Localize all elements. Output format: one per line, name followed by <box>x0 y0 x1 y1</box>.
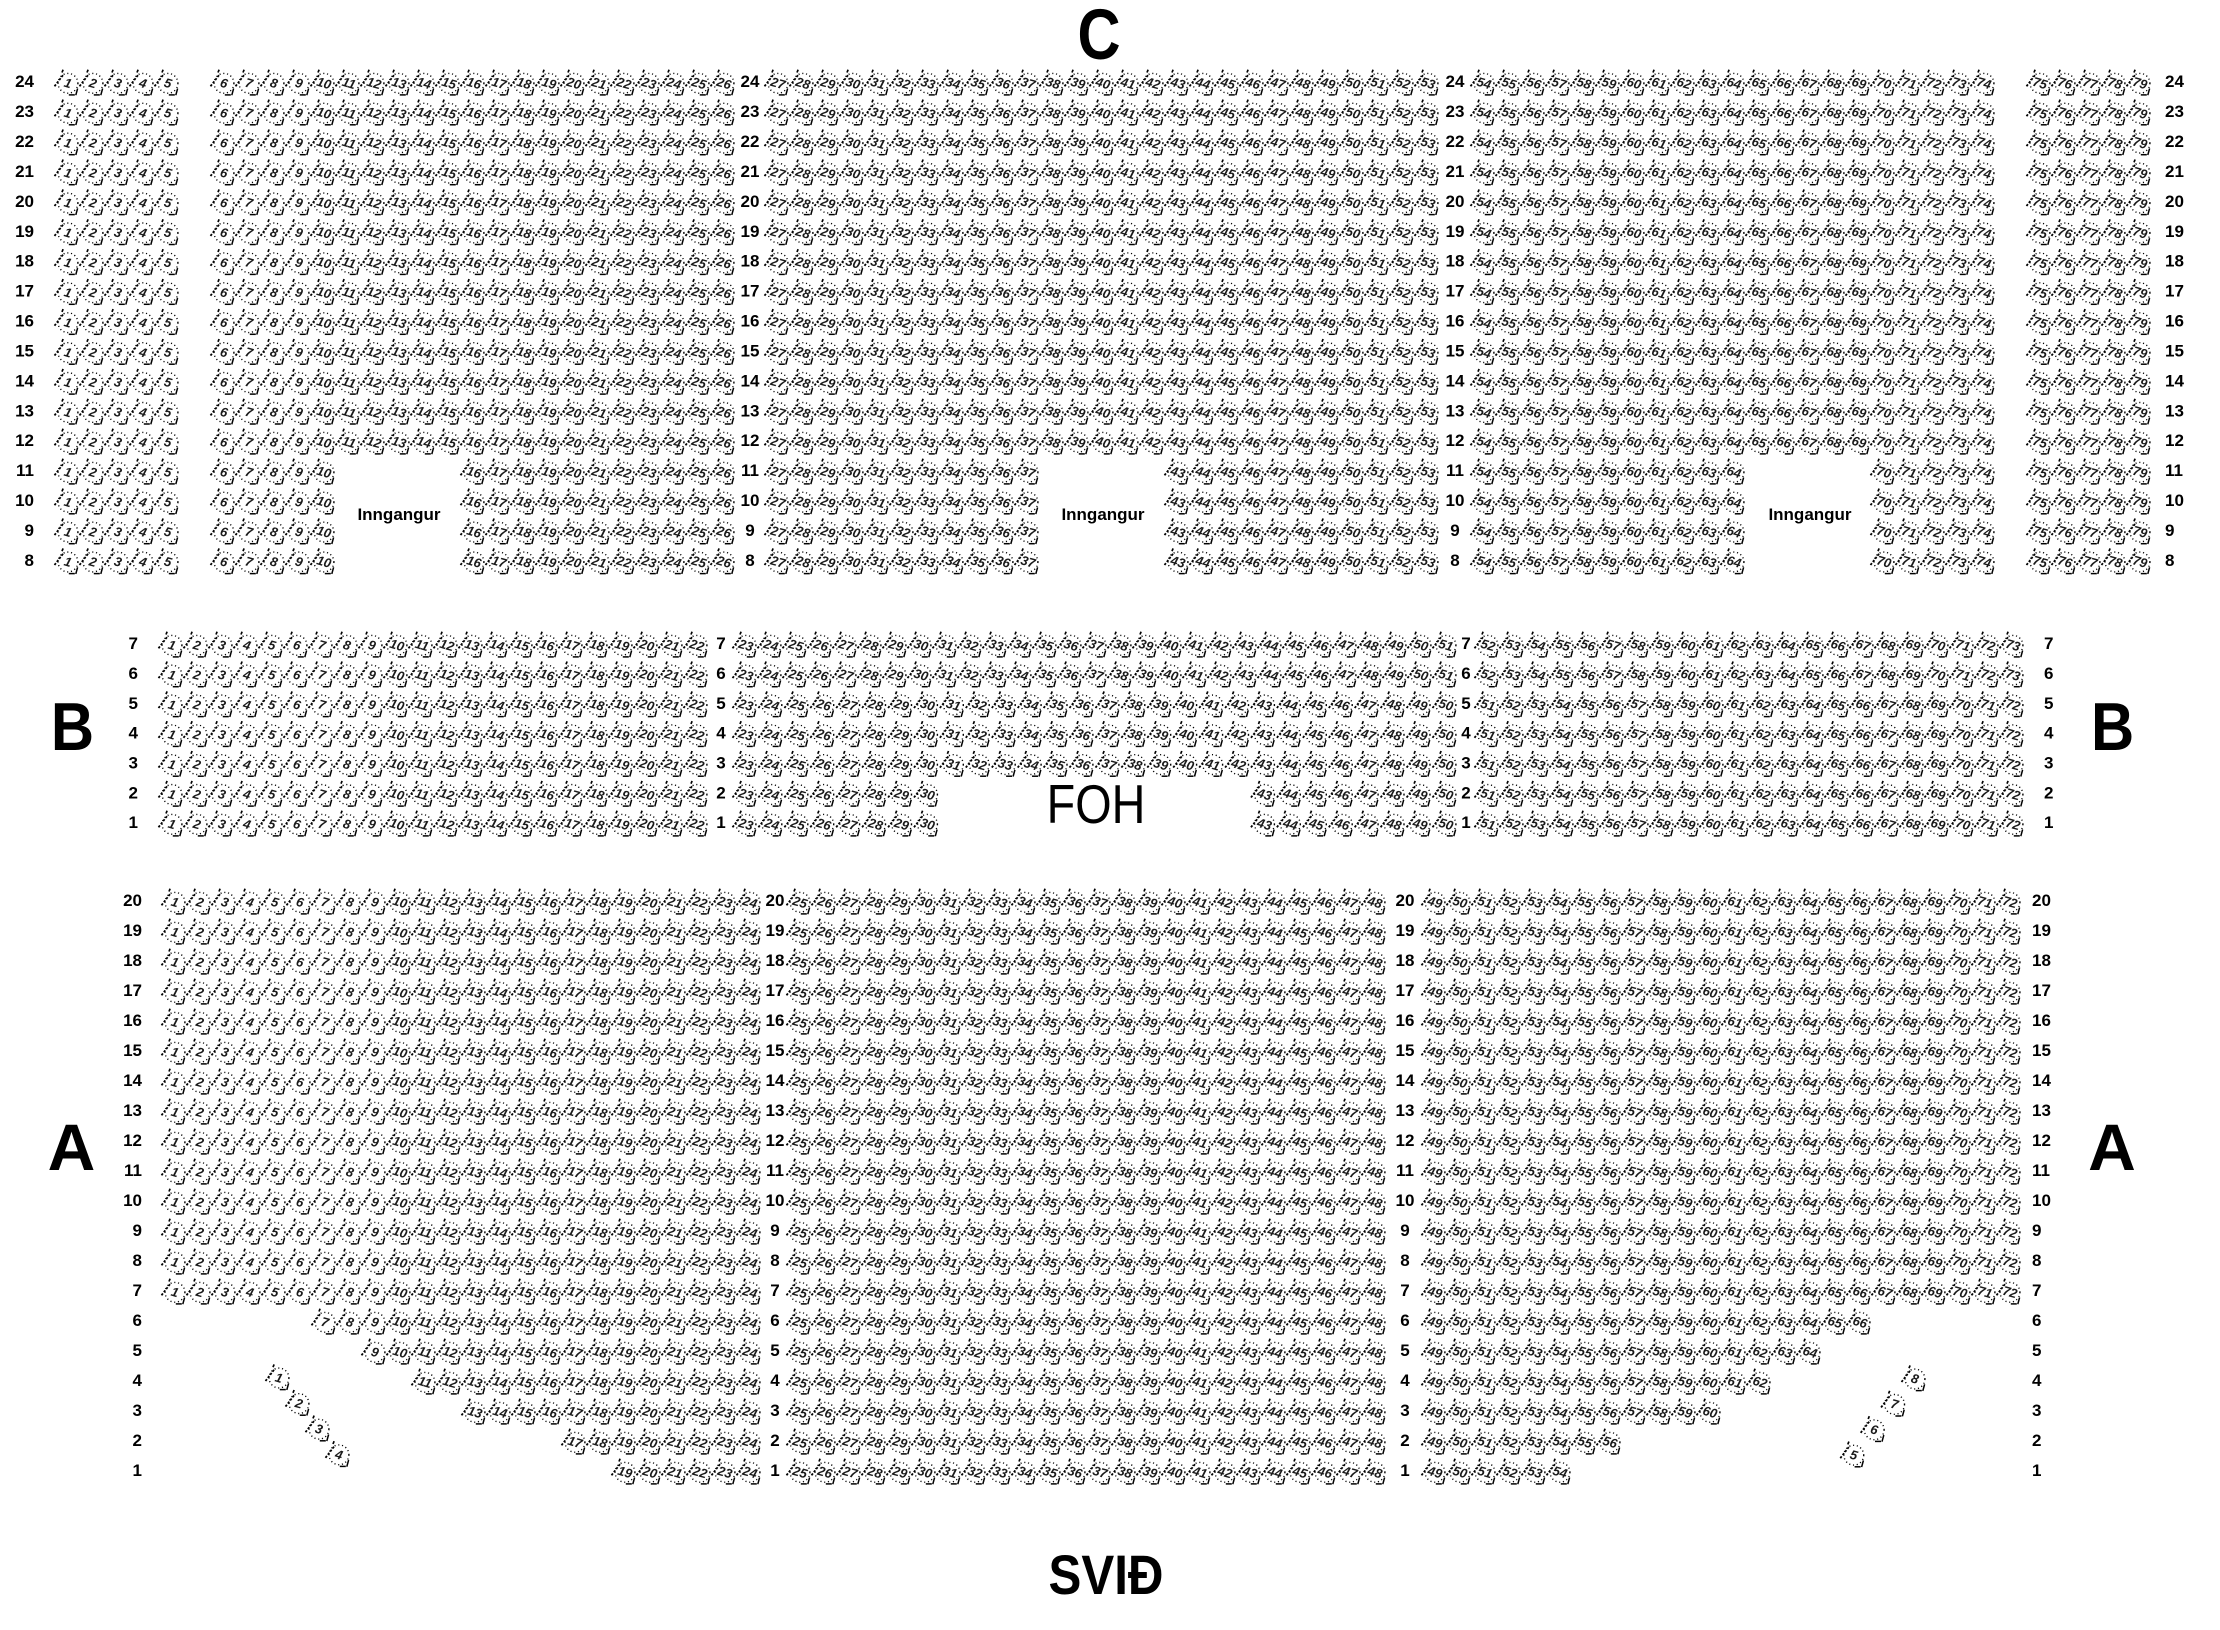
svg-text:B: B <box>51 688 94 764</box>
svg-text:13: 13 <box>766 1101 785 1120</box>
svg-text:19: 19 <box>2032 921 2051 940</box>
svg-text:8: 8 <box>770 1251 779 1270</box>
svg-text:11: 11 <box>1396 1161 1414 1180</box>
svg-text:6: 6 <box>716 664 725 683</box>
svg-text:12: 12 <box>2165 431 2184 450</box>
svg-text:2: 2 <box>1400 1431 1409 1450</box>
svg-text:11: 11 <box>124 1161 142 1180</box>
svg-text:18: 18 <box>15 252 34 271</box>
svg-text:8: 8 <box>133 1251 142 1270</box>
svg-text:4: 4 <box>2032 1371 2042 1390</box>
svg-text:19: 19 <box>766 921 785 940</box>
svg-text:7: 7 <box>1400 1281 1409 1300</box>
svg-text:16: 16 <box>1446 312 1465 331</box>
svg-text:6: 6 <box>1400 1311 1409 1330</box>
svg-text:20: 20 <box>2032 891 2051 910</box>
svg-text:12: 12 <box>1446 431 1465 450</box>
svg-text:16: 16 <box>766 1011 785 1030</box>
svg-text:18: 18 <box>741 252 760 271</box>
svg-text:B: B <box>2091 688 2134 764</box>
svg-text:17: 17 <box>1446 282 1465 301</box>
svg-text:5: 5 <box>1400 1341 1409 1360</box>
svg-text:16: 16 <box>15 312 34 331</box>
svg-text:5: 5 <box>129 694 138 713</box>
svg-text:6: 6 <box>2032 1311 2041 1330</box>
svg-text:15: 15 <box>1446 342 1465 361</box>
svg-text:15: 15 <box>2032 1041 2051 1060</box>
svg-text:11: 11 <box>741 461 759 480</box>
svg-text:10: 10 <box>123 1191 142 1210</box>
svg-text:C: C <box>1077 0 1120 74</box>
svg-text:3: 3 <box>1461 754 1470 773</box>
svg-text:24: 24 <box>1446 72 1465 91</box>
svg-text:9: 9 <box>1400 1221 1409 1240</box>
svg-text:4: 4 <box>1461 724 1471 743</box>
svg-text:18: 18 <box>2032 951 2051 970</box>
svg-text:9: 9 <box>133 1221 142 1240</box>
svg-text:16: 16 <box>741 312 760 331</box>
svg-text:Inngangur: Inngangur <box>1061 505 1144 524</box>
svg-text:9: 9 <box>745 521 754 540</box>
svg-text:17: 17 <box>2032 981 2051 1000</box>
svg-text:13: 13 <box>2032 1101 2051 1120</box>
svg-text:20: 20 <box>741 192 760 211</box>
svg-text:10: 10 <box>1396 1191 1415 1210</box>
svg-text:5: 5 <box>1461 694 1470 713</box>
svg-text:10: 10 <box>2165 491 2184 510</box>
svg-text:8: 8 <box>2165 551 2174 570</box>
svg-text:Inngangur: Inngangur <box>357 505 440 524</box>
svg-text:13: 13 <box>1446 401 1465 420</box>
svg-text:A: A <box>48 1110 96 1184</box>
svg-text:17: 17 <box>15 282 34 301</box>
svg-text:6: 6 <box>770 1311 779 1330</box>
svg-text:23: 23 <box>741 102 760 121</box>
svg-text:12: 12 <box>766 1131 785 1150</box>
svg-text:16: 16 <box>1396 1011 1415 1030</box>
svg-text:20: 20 <box>123 891 142 910</box>
svg-text:2: 2 <box>770 1431 779 1450</box>
svg-text:2: 2 <box>133 1431 142 1450</box>
svg-text:1: 1 <box>1400 1461 1409 1480</box>
svg-text:18: 18 <box>123 951 142 970</box>
svg-text:12: 12 <box>1396 1131 1415 1150</box>
svg-text:1: 1 <box>2032 1461 2041 1480</box>
svg-text:13: 13 <box>123 1101 142 1120</box>
svg-text:19: 19 <box>1396 921 1415 940</box>
svg-text:3: 3 <box>770 1401 779 1420</box>
svg-text:8: 8 <box>25 551 34 570</box>
svg-text:6: 6 <box>1461 664 1470 683</box>
svg-text:15: 15 <box>15 342 34 361</box>
svg-text:9: 9 <box>2165 521 2174 540</box>
svg-text:14: 14 <box>2032 1071 2051 1090</box>
svg-text:22: 22 <box>1446 132 1465 151</box>
svg-text:8: 8 <box>1400 1251 1409 1270</box>
svg-text:6: 6 <box>2044 664 2053 683</box>
svg-text:13: 13 <box>2165 401 2184 420</box>
svg-text:23: 23 <box>1446 102 1465 121</box>
svg-text:14: 14 <box>766 1071 785 1090</box>
svg-text:12: 12 <box>2032 1131 2051 1150</box>
svg-text:8: 8 <box>745 551 754 570</box>
svg-text:14: 14 <box>741 371 760 390</box>
svg-text:23: 23 <box>2165 102 2184 121</box>
svg-text:3: 3 <box>1400 1401 1409 1420</box>
svg-text:4: 4 <box>2044 724 2054 743</box>
svg-text:3: 3 <box>129 754 138 773</box>
svg-text:23: 23 <box>15 102 34 121</box>
svg-text:7: 7 <box>2032 1281 2041 1300</box>
svg-text:2: 2 <box>1461 783 1470 802</box>
svg-text:10: 10 <box>2032 1191 2051 1210</box>
svg-text:13: 13 <box>741 401 760 420</box>
svg-text:13: 13 <box>15 401 34 420</box>
svg-text:20: 20 <box>2165 192 2184 211</box>
svg-text:10: 10 <box>15 491 34 510</box>
svg-text:1: 1 <box>133 1461 142 1480</box>
svg-text:13: 13 <box>1396 1101 1415 1120</box>
svg-text:4: 4 <box>1400 1371 1410 1390</box>
svg-text:11: 11 <box>2165 461 2183 480</box>
svg-text:7: 7 <box>129 634 138 653</box>
svg-text:4: 4 <box>129 724 139 743</box>
svg-text:A: A <box>2088 1110 2136 1184</box>
svg-text:15: 15 <box>1396 1041 1415 1060</box>
svg-text:1: 1 <box>770 1461 779 1480</box>
svg-text:3: 3 <box>716 754 725 773</box>
svg-text:22: 22 <box>741 132 760 151</box>
svg-text:12: 12 <box>741 431 760 450</box>
svg-text:1: 1 <box>129 813 138 832</box>
svg-text:7: 7 <box>133 1281 142 1300</box>
svg-text:16: 16 <box>123 1011 142 1030</box>
svg-text:20: 20 <box>1446 192 1465 211</box>
svg-text:19: 19 <box>2165 222 2184 241</box>
svg-text:3: 3 <box>2044 754 2053 773</box>
svg-text:Inngangur: Inngangur <box>1768 505 1851 524</box>
svg-text:18: 18 <box>2165 252 2184 271</box>
svg-text:10: 10 <box>741 491 760 510</box>
svg-text:5: 5 <box>2032 1341 2041 1360</box>
svg-text:20: 20 <box>766 891 785 910</box>
svg-text:18: 18 <box>766 951 785 970</box>
svg-text:11: 11 <box>766 1161 784 1180</box>
svg-text:21: 21 <box>741 162 760 181</box>
svg-text:9: 9 <box>770 1221 779 1240</box>
svg-text:24: 24 <box>2165 72 2184 91</box>
svg-text:14: 14 <box>15 371 34 390</box>
svg-text:19: 19 <box>15 222 34 241</box>
svg-text:17: 17 <box>741 282 760 301</box>
svg-text:15: 15 <box>766 1041 785 1060</box>
svg-text:19: 19 <box>741 222 760 241</box>
svg-text:7: 7 <box>1461 634 1470 653</box>
svg-text:6: 6 <box>129 664 138 683</box>
svg-text:15: 15 <box>2165 342 2184 361</box>
svg-text:20: 20 <box>1396 891 1415 910</box>
svg-text:20: 20 <box>15 192 34 211</box>
svg-text:16: 16 <box>2032 1011 2051 1030</box>
svg-text:2: 2 <box>129 783 138 802</box>
svg-text:SVIÐ: SVIÐ <box>1048 1544 1163 1607</box>
svg-text:7: 7 <box>770 1281 779 1300</box>
svg-text:17: 17 <box>2165 282 2184 301</box>
svg-text:3: 3 <box>2032 1401 2041 1420</box>
svg-text:19: 19 <box>123 921 142 940</box>
svg-text:7: 7 <box>2044 634 2053 653</box>
svg-text:15: 15 <box>123 1041 142 1060</box>
svg-text:2: 2 <box>2044 783 2053 802</box>
svg-text:17: 17 <box>1396 981 1415 1000</box>
svg-text:2: 2 <box>2032 1431 2041 1450</box>
svg-text:9: 9 <box>1450 521 1459 540</box>
svg-text:17: 17 <box>766 981 785 1000</box>
svg-text:14: 14 <box>2165 371 2184 390</box>
svg-text:12: 12 <box>15 431 34 450</box>
svg-text:14: 14 <box>1396 1071 1415 1090</box>
svg-text:11: 11 <box>2032 1161 2050 1180</box>
svg-text:18: 18 <box>1396 951 1415 970</box>
svg-text:3: 3 <box>133 1401 142 1420</box>
svg-text:4: 4 <box>770 1371 780 1390</box>
svg-text:9: 9 <box>25 521 34 540</box>
svg-text:15: 15 <box>741 342 760 361</box>
svg-text:8: 8 <box>2032 1251 2041 1270</box>
svg-text:14: 14 <box>1446 371 1465 390</box>
svg-text:18: 18 <box>1446 252 1465 271</box>
svg-text:16: 16 <box>2165 312 2184 331</box>
svg-text:17: 17 <box>123 981 142 1000</box>
svg-text:19: 19 <box>1446 222 1465 241</box>
svg-text:21: 21 <box>1446 162 1465 181</box>
svg-text:21: 21 <box>15 162 34 181</box>
svg-text:9: 9 <box>2032 1221 2041 1240</box>
svg-text:4: 4 <box>716 724 726 743</box>
svg-text:FOH: FOH <box>1047 773 1146 834</box>
svg-text:1: 1 <box>716 813 725 832</box>
svg-text:12: 12 <box>123 1131 142 1150</box>
svg-text:5: 5 <box>133 1341 142 1360</box>
svg-text:10: 10 <box>766 1191 785 1210</box>
svg-text:5: 5 <box>2044 694 2053 713</box>
svg-text:7: 7 <box>716 634 725 653</box>
svg-text:24: 24 <box>741 72 760 91</box>
svg-text:10: 10 <box>1446 491 1465 510</box>
svg-text:22: 22 <box>15 132 34 151</box>
svg-text:14: 14 <box>123 1071 142 1090</box>
svg-text:8: 8 <box>1450 551 1459 570</box>
svg-text:1: 1 <box>2044 813 2053 832</box>
svg-text:24: 24 <box>15 72 34 91</box>
svg-text:1: 1 <box>1461 813 1470 832</box>
svg-text:6: 6 <box>133 1311 142 1330</box>
svg-text:11: 11 <box>16 461 34 480</box>
svg-text:11: 11 <box>1446 461 1464 480</box>
svg-text:5: 5 <box>770 1341 779 1360</box>
svg-text:4: 4 <box>133 1371 143 1390</box>
svg-text:21: 21 <box>2165 162 2184 181</box>
svg-text:5: 5 <box>716 694 725 713</box>
svg-text:22: 22 <box>2165 132 2184 151</box>
svg-text:2: 2 <box>716 783 725 802</box>
